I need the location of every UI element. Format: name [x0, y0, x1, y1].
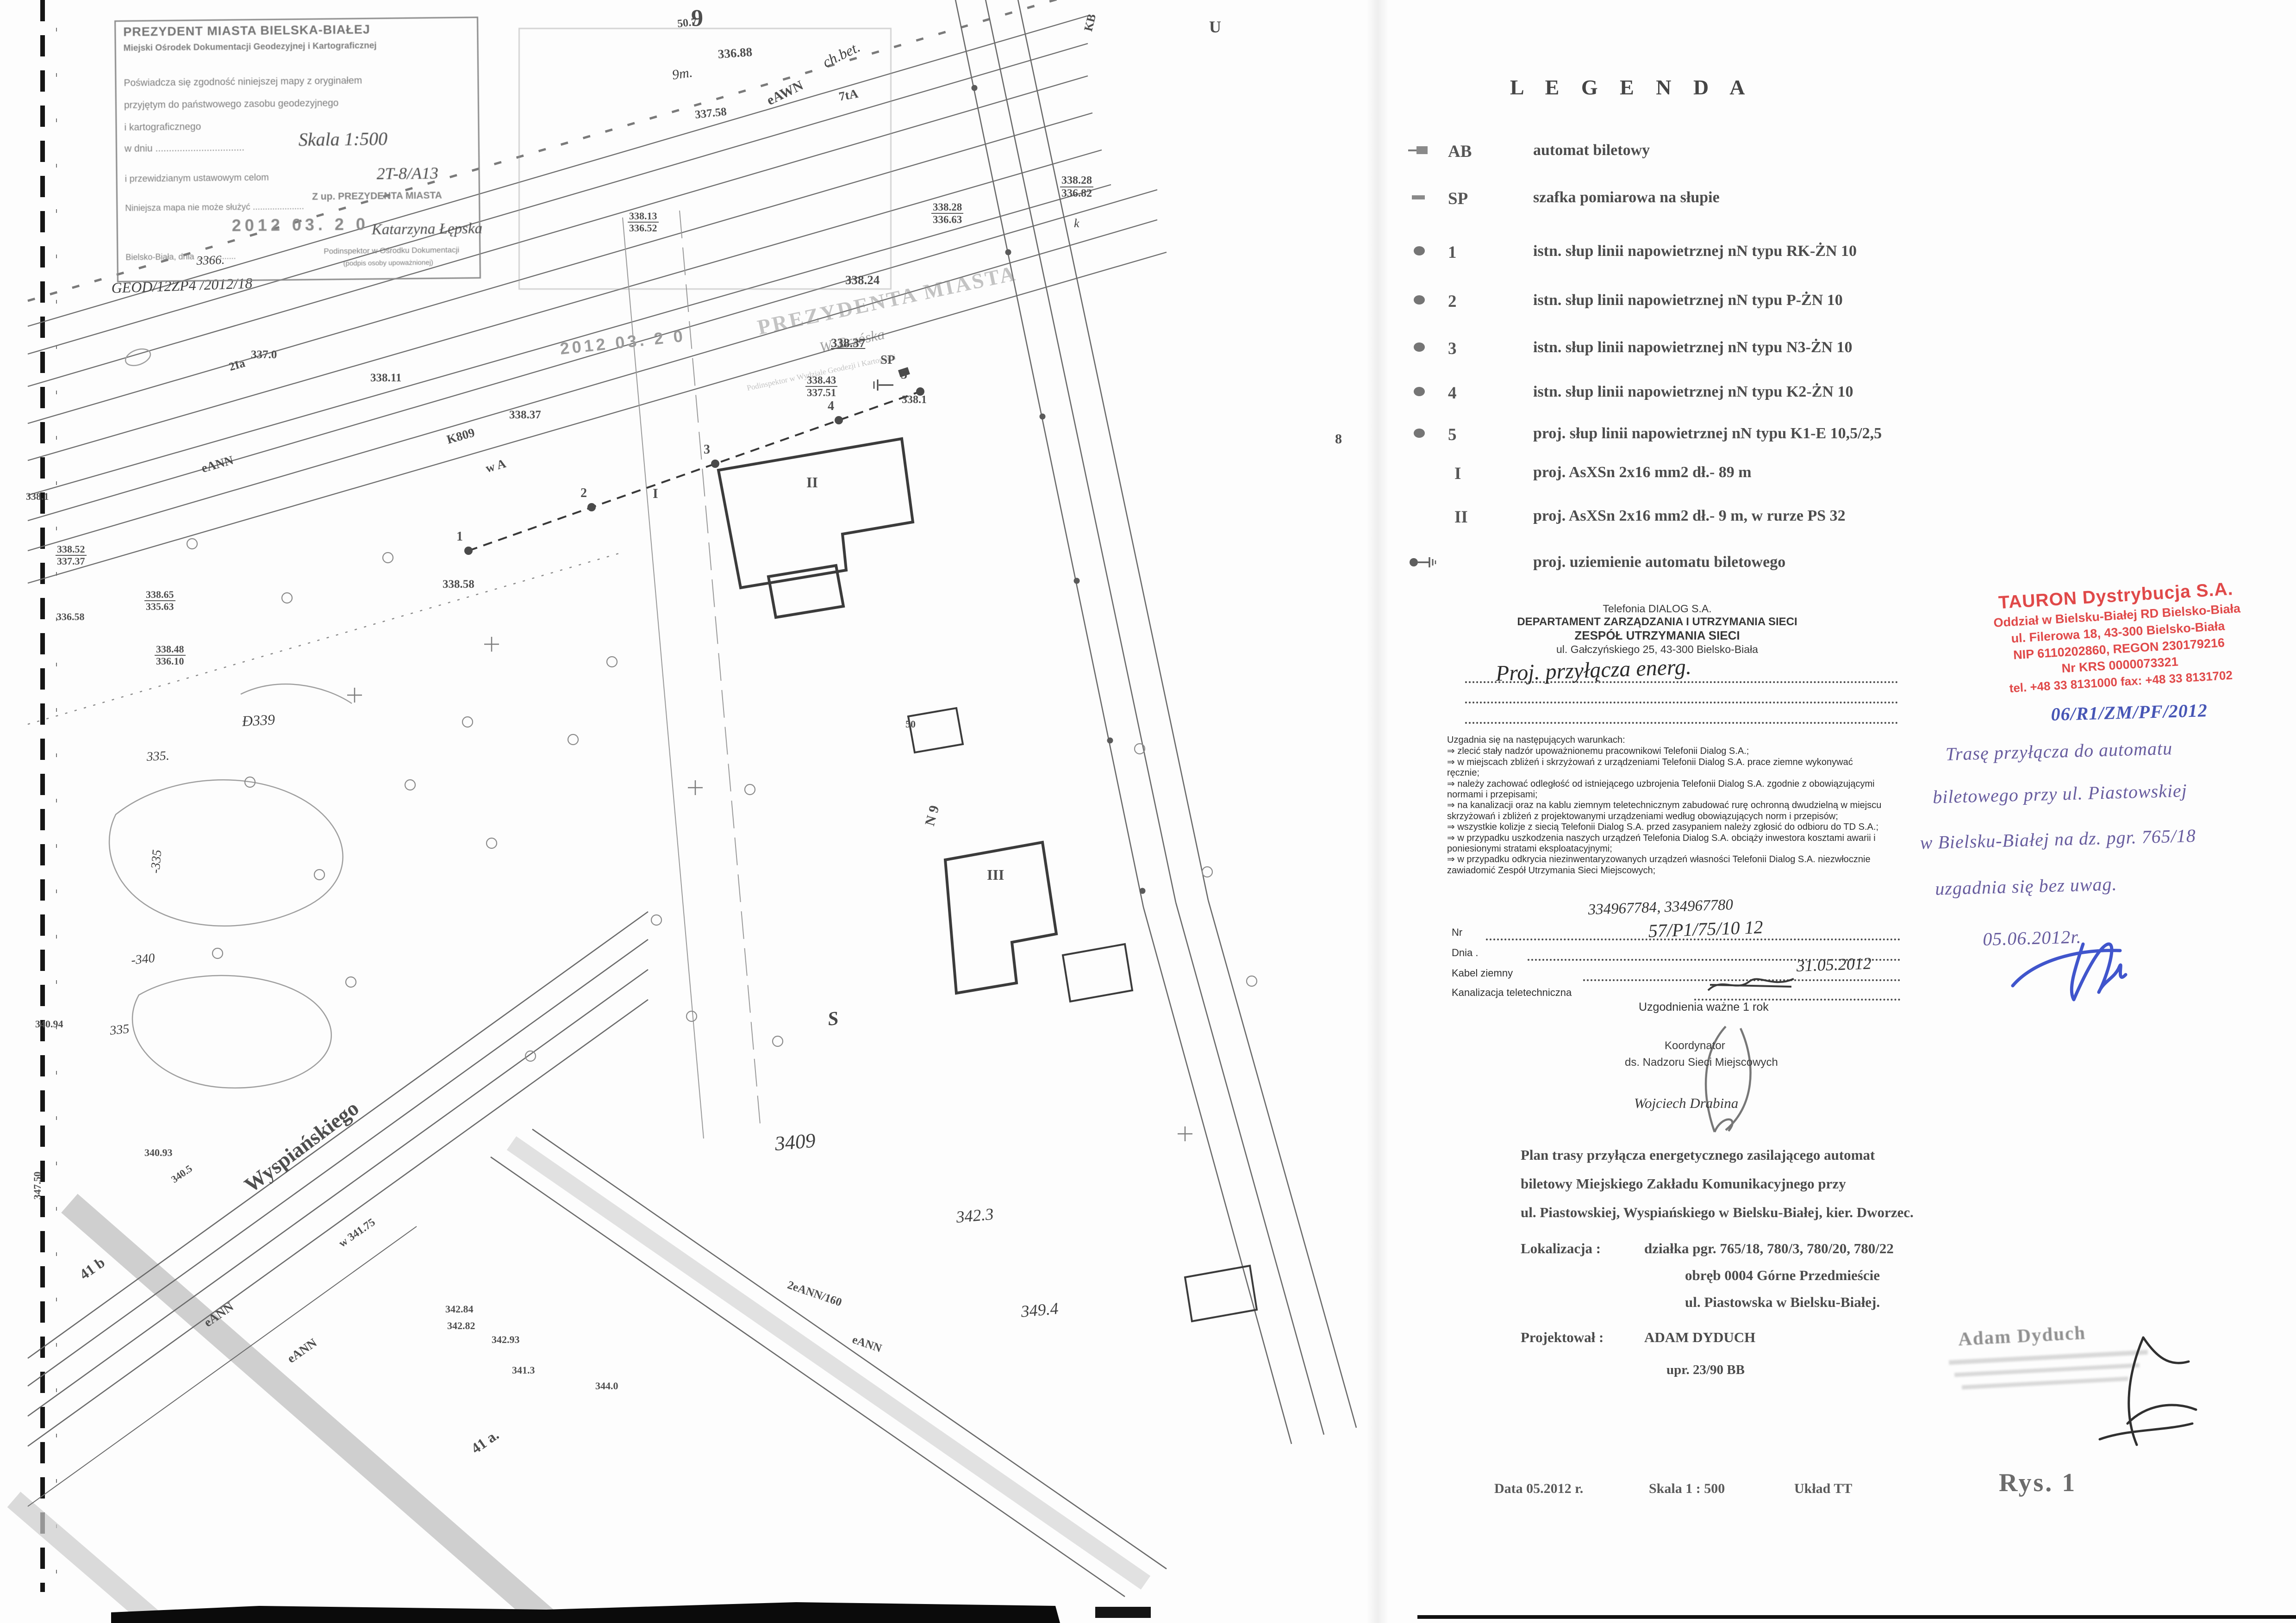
handwritten-ref-number: 57/P1/75/10 12 — [1648, 916, 1763, 942]
dialog-stamp-header: Telefonia DIALOG S.A.DEPARTAMENT ZARZĄDZ… — [1458, 603, 1856, 656]
label: 338.52337.37 — [56, 544, 87, 566]
label: w Bielsku-Białej na dz. pgr. 765/18 — [1920, 825, 2196, 854]
scan-artifact-line — [1417, 1615, 2296, 1619]
text-line: Telefonia DIALOG S.A. — [1458, 603, 1856, 616]
handwritten-date: 31.05.2012 — [1796, 953, 1872, 976]
legend-symbol — [1407, 340, 1440, 357]
label: (podpis osoby upoważnionej) — [343, 259, 433, 267]
label: S — [827, 1009, 840, 1029]
legend-label: automat biletowy — [1533, 142, 1650, 159]
text-line: ZESPÓŁ UTRZYMANIA SIECI — [1458, 628, 1856, 643]
legend-code: I — [1448, 464, 1533, 484]
validity-note: Uzgodnienia ważne 1 rok — [1639, 1001, 1769, 1014]
legend-label: proj. uziemienie automatu biletowego — [1533, 553, 1785, 571]
footer-date: Data 05.2012 r. — [1494, 1481, 1583, 1497]
dotted-line — [1528, 959, 1900, 961]
label: przyjętym do państwowego zasobu geodezyj… — [124, 98, 339, 111]
tauron-stamp: TAURON Dystrybucja S.A.Oddział w Bielsku… — [1930, 573, 2296, 700]
pole-dot-icon — [1407, 243, 1440, 258]
legend-code: 3 — [1448, 339, 1527, 359]
label: Skala 1:500 — [299, 129, 388, 149]
footer-grid: Układ TT — [1794, 1481, 1852, 1497]
legend-code: 4 — [1448, 383, 1527, 403]
label: Poświadcza się zgodność niniejszej mapy … — [124, 76, 362, 88]
designer-stamp-name: Adam Dyduch — [1958, 1321, 2086, 1350]
label: Niniejsza mapa nie może służyć .........… — [125, 202, 304, 213]
label: 338.48336.10 — [155, 644, 186, 666]
label: 8 — [1335, 432, 1342, 446]
legend-label: istn. słup linii napowietrznej nN typu K… — [1533, 383, 1853, 401]
elevation-bottom: 336.63 — [931, 214, 963, 225]
field-label: Kabel ziemny — [1452, 967, 1513, 979]
label: 338.65335.63 — [144, 590, 175, 612]
designer-label: Projektował : — [1521, 1329, 1603, 1346]
dialog-conditions: Uzgadnia się na następujących warunkach:… — [1447, 735, 1888, 876]
label: Miejski Ośrodek Dokumentacji Geodezyjnej… — [124, 41, 377, 53]
legend-symbol — [1407, 554, 1440, 572]
kanalizacja-scribble — [1703, 971, 1805, 999]
ab-square-icon — [1407, 143, 1440, 157]
legend-symbol — [1407, 384, 1440, 401]
text-line: ⇒ w przypadku odkrycia niezinwentaryzowa… — [1447, 854, 1888, 876]
field-label: Dnia . — [1452, 947, 1478, 959]
legend-label: istn. słup linii napowietrznej nN typu N… — [1533, 339, 1853, 356]
dotted-line — [1486, 939, 1900, 940]
ground-symbol-icon — [1407, 554, 1449, 570]
legend-label: istn. słup linii napowietrznej nN typu P… — [1533, 292, 1843, 309]
legend-code: 1 — [1448, 243, 1527, 262]
coordinator-pen-loop — [1670, 1024, 1777, 1135]
plan-title-line1: Plan trasy przyłącza energetycznego zasi… — [1521, 1147, 1875, 1163]
legend-label: proj. AsXSn 2x16 mm2 dł.- 89 m — [1533, 464, 1752, 481]
legend-code: SP — [1448, 189, 1527, 209]
street-right — [954, 0, 1356, 1444]
label: -340 — [131, 952, 156, 967]
legend-label: istn. słup linii napowietrznej nN typu R… — [1533, 243, 1857, 260]
label: W. Brzóska — [818, 325, 886, 356]
label: -335 — [149, 849, 164, 874]
pole-dot-icon — [1407, 340, 1440, 354]
legend-label: proj. AsXSn 2x16 mm2 dł.- 9 m, w rurze P… — [1533, 507, 1846, 525]
elevation-bottom: 335.63 — [144, 601, 175, 612]
label: 347.50 — [32, 1172, 43, 1200]
label: 338.1 — [902, 394, 927, 405]
legend-title: L E G E N D A — [1510, 75, 1753, 99]
label: biletowego przy ul. Piastowskiej — [1933, 779, 2188, 808]
text-line: ⇒ należy zachować odległość od istniejąc… — [1447, 779, 1888, 801]
elevation-top: 338.52 — [56, 544, 87, 556]
label: 335 — [109, 1023, 130, 1038]
elevation-bottom: 336.10 — [155, 656, 186, 666]
elevation-top: 338.28 — [1060, 175, 1093, 187]
coordinator-name: Wojciech Drabina — [1634, 1095, 1738, 1112]
legend-label: szafka pomiarowa na słupie — [1533, 189, 1720, 206]
label: 342.93 — [492, 1335, 520, 1345]
pole-symbols — [972, 85, 1146, 894]
approval-signature — [2004, 930, 2134, 1009]
text-line: Uzgadnia się na następujących warunkach: — [1447, 735, 1888, 746]
text-line: DEPARTAMENT ZARZĄDZANIA I UTRZYMANIA SIE… — [1458, 616, 1856, 629]
drawing-number: Rys. 1 — [1999, 1468, 2077, 1498]
designer-signature — [2069, 1328, 2217, 1458]
legend-symbol — [1407, 426, 1440, 443]
scanned-plan-page: 950.7336.889m.337.58eAWNch.bet.7tAKBU338… — [0, 0, 2296, 1623]
label: 2 — [580, 487, 587, 500]
label: I — [653, 487, 658, 501]
legend-symbol — [1407, 243, 1440, 261]
field-label: Nr — [1452, 927, 1462, 939]
label: 06/R1/ZM/PF/2012 — [2051, 699, 2208, 725]
label: 2012 03. 2 0 — [232, 215, 369, 234]
dotted-line — [1465, 702, 1898, 703]
label: II — [806, 475, 818, 490]
label: i kartograficznego — [124, 122, 201, 133]
text-line: ⇒ na kanalizacji oraz na kablu ziemnym t… — [1447, 800, 1888, 822]
label: 338.28336.63 — [931, 202, 963, 225]
label: 338.11 — [370, 372, 401, 384]
label: 337.0 — [251, 349, 277, 361]
label: uzgadnia się bez uwag. — [1935, 873, 2117, 899]
label: PREZYDENT MIASTA BIELSKA-BIAŁEJ — [123, 23, 370, 38]
text-line: ul. Gałczyńskiego 25, 43-300 Bielsko-Bia… — [1458, 643, 1856, 656]
legend-label: proj. słup linii napowietrznej nN typu K… — [1533, 425, 1882, 442]
street-wyspianskiego — [14, 912, 1167, 1623]
scan-artifact — [111, 1602, 1060, 1623]
footer-scale: Skala 1 : 500 — [1649, 1481, 1725, 1497]
elevation-top: 338.28 — [931, 202, 963, 214]
legend-symbol — [1407, 143, 1440, 160]
field-label: Kanalizacja teletechniczna — [1452, 987, 1572, 999]
dotted-line — [1465, 722, 1898, 724]
elevation-bottom: 336.82 — [1060, 187, 1093, 199]
label: 338.28336.82 — [1060, 175, 1093, 199]
label: 349.4 — [1020, 1300, 1059, 1320]
label: i przewidzianym ustawowym celom — [125, 173, 269, 184]
pole-dot-icon — [1407, 384, 1440, 399]
tree-symbols — [187, 539, 1257, 1061]
pole-dot-icon — [1407, 292, 1440, 307]
legend-code: AB — [1448, 142, 1527, 162]
label: Podinspektor w Wydziale Geodezji i Karto… — [746, 352, 897, 393]
legend-code: II — [1448, 507, 1533, 527]
projected-route — [464, 367, 924, 555]
label: U — [1209, 19, 1221, 35]
text-line: ⇒ w przypadku uszkodzenia naszych urządz… — [1447, 833, 1888, 855]
page-fold-shadow — [1366, 0, 1389, 1623]
location-district: obręb 0004 Górne Przedmieście — [1685, 1267, 1880, 1284]
plan-title-line3: ul. Piastowskiej, Wyspiańskiego w Bielsk… — [1521, 1204, 1914, 1221]
label: Z up. PREZYDENTA MIASTA — [312, 191, 442, 202]
label: 1 — [456, 530, 463, 543]
text-line: ⇒ w miejscach zbliżeń i skrzyżowań z urz… — [1447, 757, 1888, 779]
legend-code: 5 — [1448, 425, 1527, 445]
label: 340.93 — [144, 1148, 173, 1158]
label: 3 — [704, 443, 710, 456]
designer-name: ADAM DYDUCH — [1644, 1329, 1755, 1346]
label: Trasę przyłącza do automatu — [1945, 737, 2172, 765]
label: 335. — [146, 749, 169, 764]
mayor-stamp-1: PREZYDENT MIASTA BIELSKA-BIAŁEJMiejski O… — [114, 17, 481, 282]
label: Đ339 — [242, 712, 275, 728]
label: 338.1 — [26, 491, 49, 502]
label: 342.84 — [445, 1304, 474, 1314]
label: III — [987, 867, 1004, 882]
label: 2T-8/A13 — [376, 165, 438, 183]
designer-license: upr. 23/90 BB — [1666, 1362, 1745, 1378]
mayor-stamp-2 — [518, 28, 892, 290]
label: 3409 — [774, 1130, 817, 1154]
label: Bielsko-Biała, dnia ................. — [125, 252, 236, 261]
label: 50 — [905, 719, 916, 729]
elevation-top: 338.48 — [155, 644, 186, 656]
label: 338.37 — [509, 409, 541, 421]
elevation-top: 338.65 — [144, 590, 175, 601]
plan-title-line2: biletowy Miejskiego Zakładu Komunikacyjn… — [1521, 1175, 1846, 1192]
text-line: ⇒ wszystkie kolizje z siecią Telefonii D… — [1447, 822, 1888, 833]
text-line: ⇒ zlecić stały nadzór upoważnionemu prac… — [1447, 746, 1888, 757]
legend-symbol — [1407, 292, 1440, 310]
location-parcels: działka pgr. 765/18, 780/3, 780/20, 780/… — [1644, 1240, 1894, 1257]
label: 342.82 — [447, 1321, 475, 1331]
label: 342.3 — [955, 1206, 994, 1225]
pole-dot-icon — [1407, 426, 1440, 441]
label: 336.58 — [56, 612, 85, 622]
label: w dniu ................................. — [125, 143, 244, 154]
legend-code: 2 — [1448, 292, 1527, 311]
location-street: ul. Piastowska w Bielsku-Białej. — [1685, 1294, 1880, 1311]
fence-line — [28, 553, 620, 724]
label: 338.58 — [443, 578, 474, 590]
survey-crosses — [347, 637, 1192, 1141]
label: 341.3 — [512, 1365, 535, 1375]
handwritten-phone-numbers: 334967784, 334967780 — [1588, 896, 1734, 919]
label: 4 — [828, 400, 834, 413]
label: 340.94 — [35, 1019, 63, 1029]
label: 344.0 — [595, 1381, 618, 1391]
sp-dash-icon — [1407, 190, 1440, 205]
location-label: Lokalizacja : — [1521, 1240, 1601, 1257]
elevation-bottom: 337.37 — [56, 556, 87, 566]
legend-symbol — [1407, 190, 1440, 207]
label: Katarzyna Łępska — [372, 221, 483, 238]
label: Podinspektor w Ośrodku Dokumentacji — [324, 246, 459, 255]
